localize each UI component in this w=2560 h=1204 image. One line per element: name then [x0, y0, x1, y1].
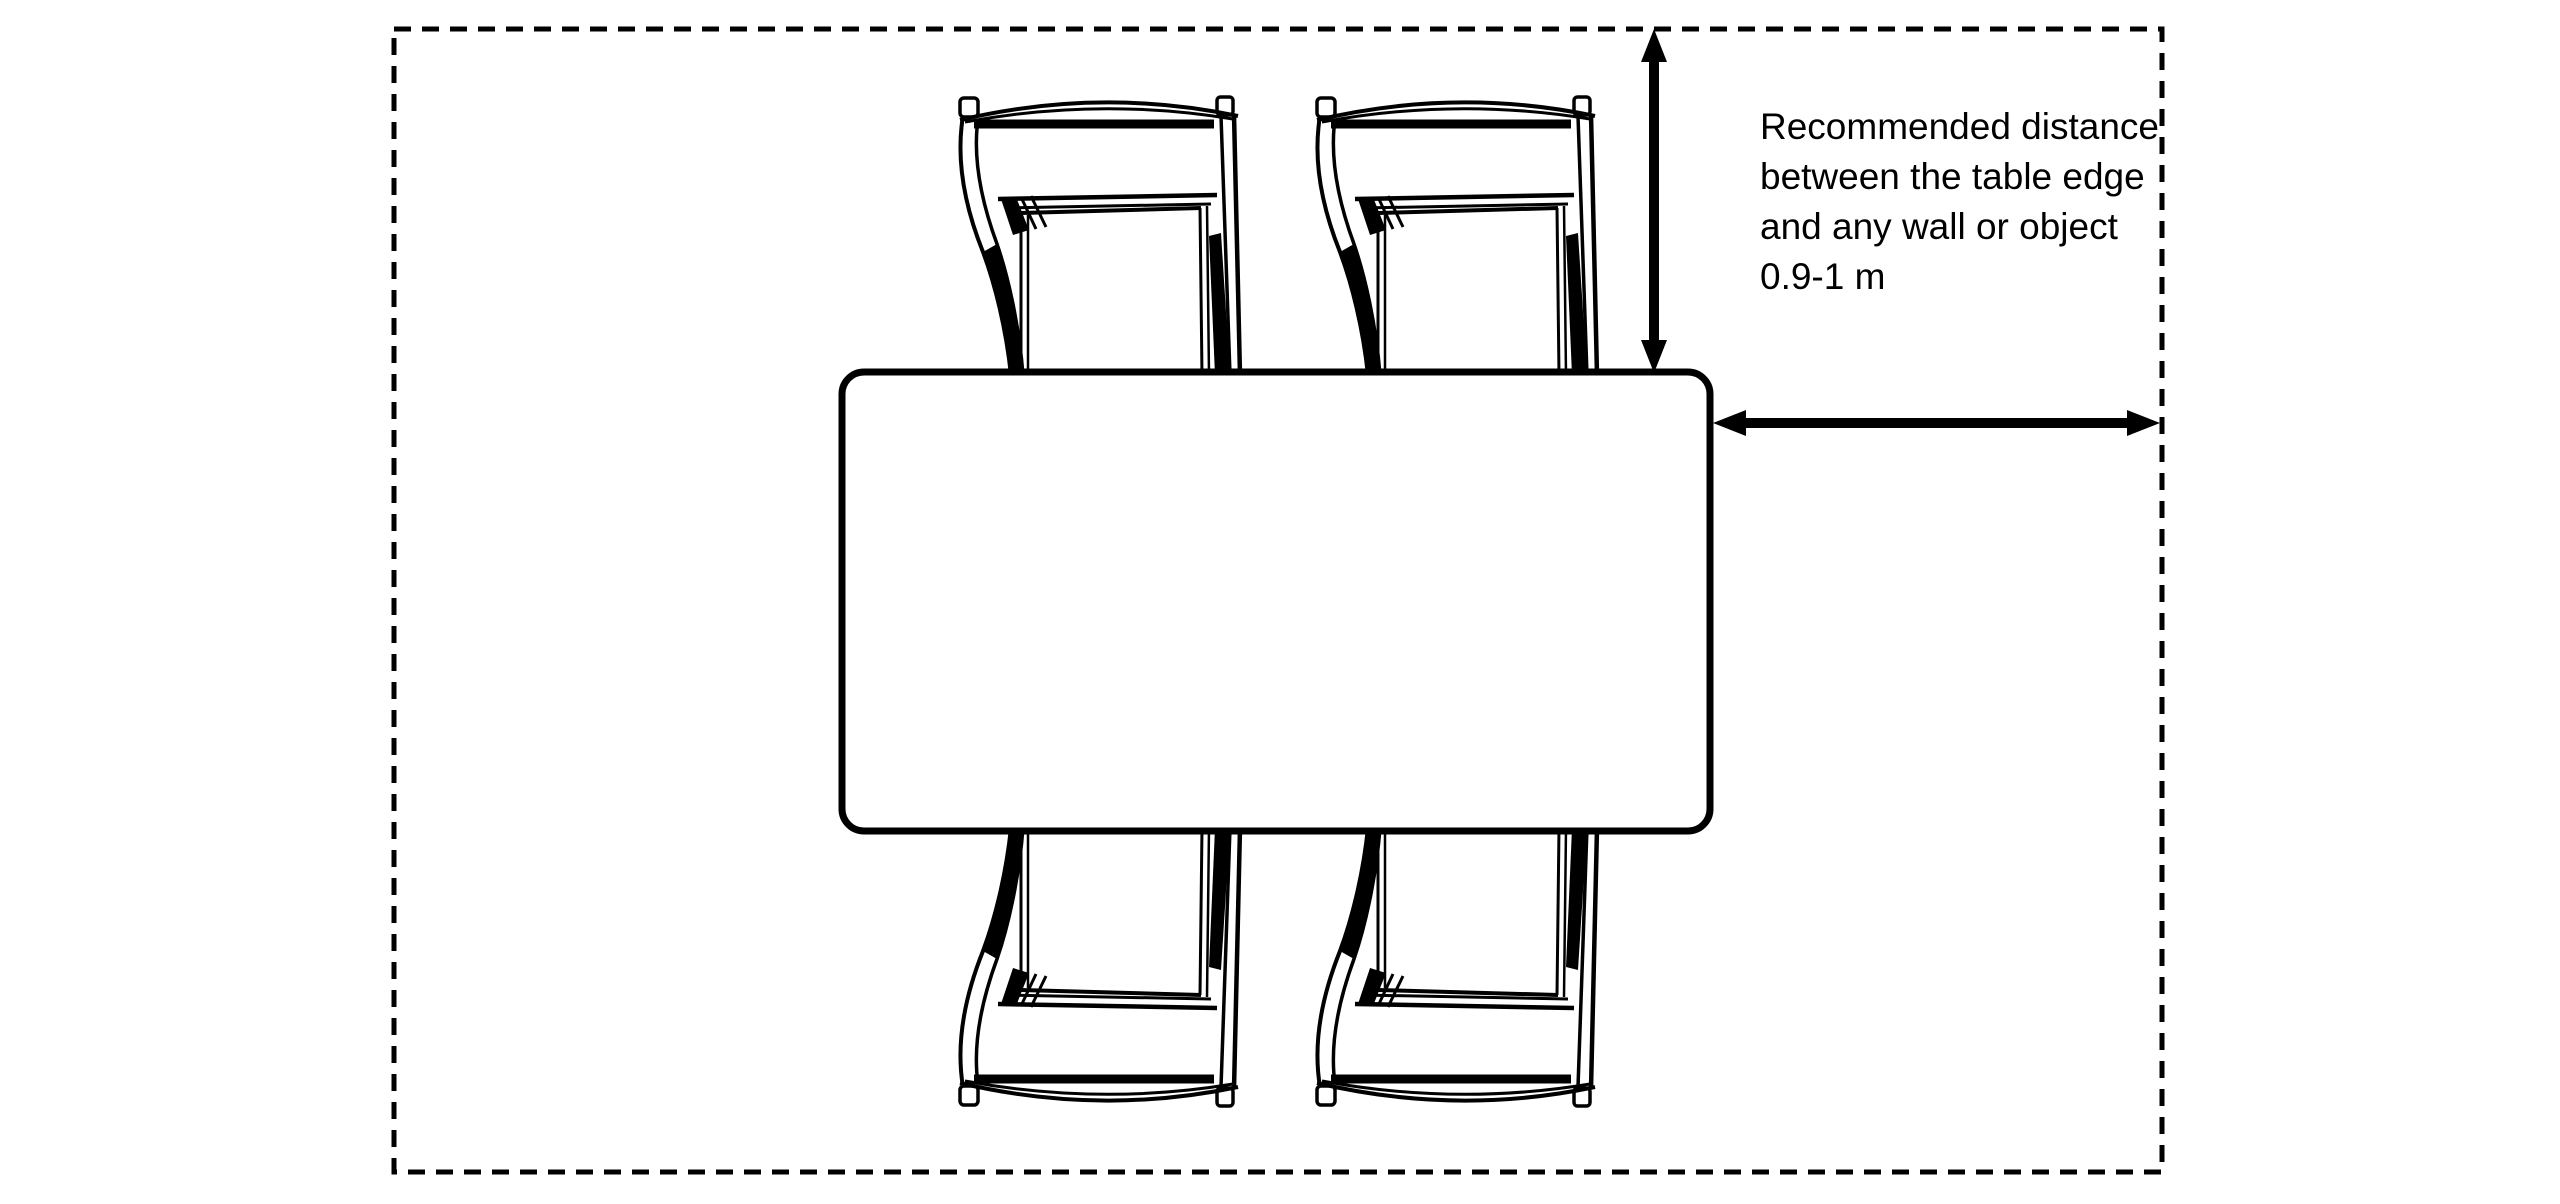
vertical-arrow-head-down — [1641, 340, 1667, 373]
horizontal-arrow-head-left — [1713, 410, 1746, 436]
annotation-text: Recommended distance between the table e… — [1760, 102, 2180, 302]
chair-top-right — [1317, 97, 1597, 375]
annotation-line-2: between the table edge — [1760, 152, 2180, 202]
vertical-arrow-head-up — [1641, 29, 1667, 62]
horizontal-clearance-arrow — [1713, 410, 2160, 436]
chair-top-left — [960, 97, 1240, 375]
annotation-line-1: Recommended distance — [1760, 102, 2180, 152]
chair-bottom-left — [960, 828, 1240, 1106]
annotation-line-4: 0.9-1 m — [1760, 252, 2180, 302]
annotation-line-3: and any wall or object — [1760, 202, 2180, 252]
clearance-diagram: Recommended distance between the table e… — [0, 0, 2560, 1204]
table-top — [842, 372, 1710, 831]
vertical-clearance-arrow — [1641, 29, 1667, 373]
horizontal-arrow-head-right — [2127, 410, 2160, 436]
chair-bottom-right — [1317, 828, 1597, 1106]
